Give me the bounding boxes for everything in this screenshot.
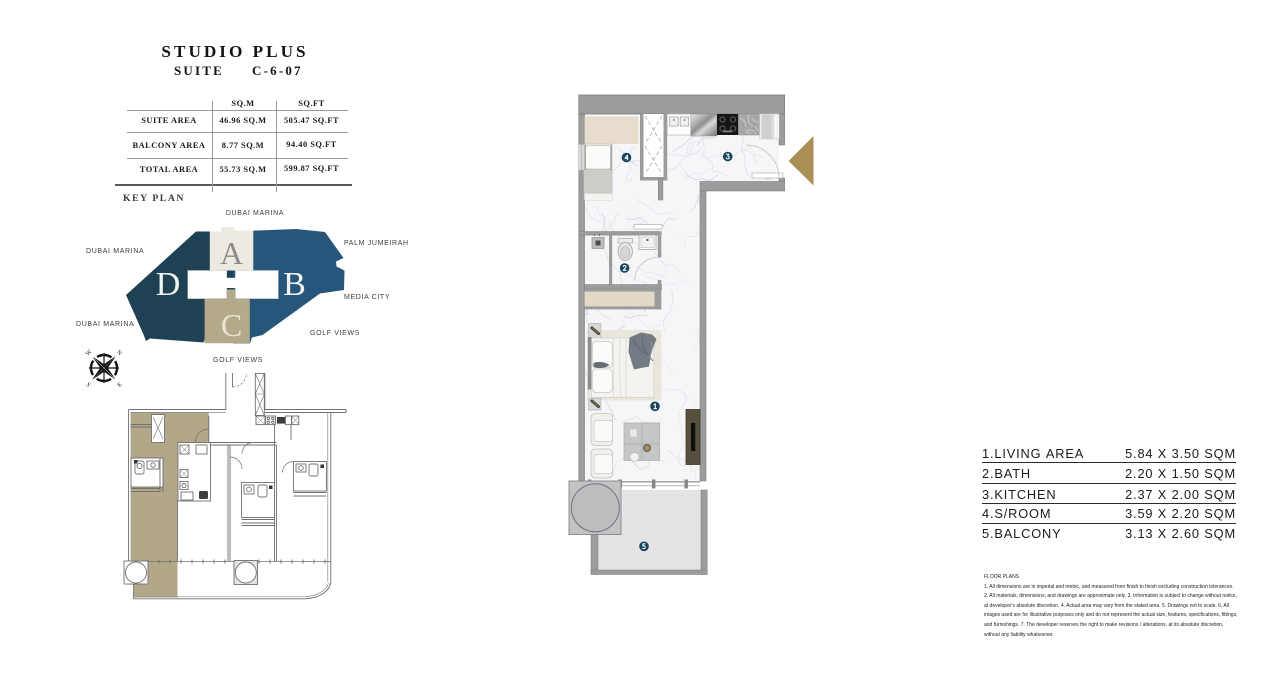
svg-text:A: A (220, 235, 243, 271)
svg-text:N: N (115, 349, 123, 357)
svg-text:B: B (283, 266, 306, 303)
svg-text:E: E (116, 381, 124, 389)
svg-text:S: S (84, 381, 92, 389)
svg-text:D: D (156, 266, 181, 303)
svg-text:C: C (221, 307, 242, 343)
